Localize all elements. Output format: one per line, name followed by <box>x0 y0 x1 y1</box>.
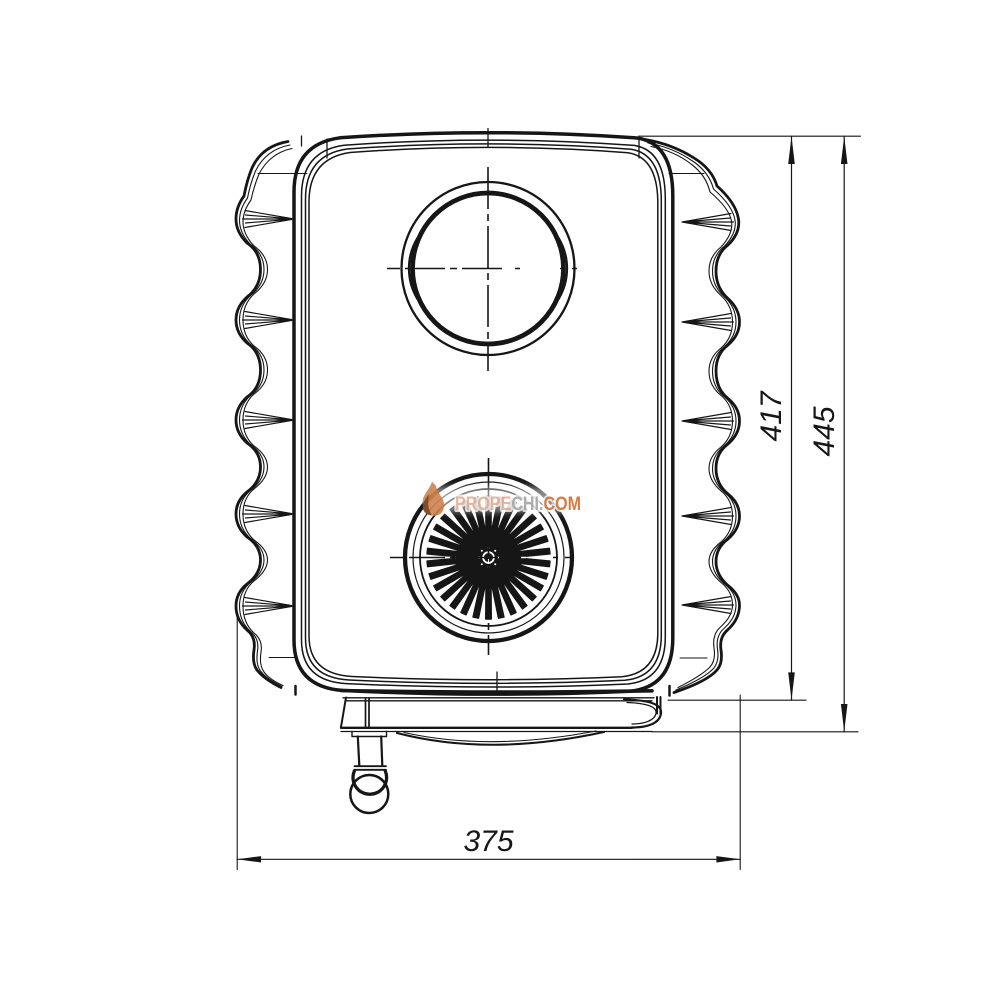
svg-text:PROPECHI.COM: PROPECHI.COM <box>455 494 581 515</box>
svg-text:417: 417 <box>755 390 788 441</box>
svg-text:445: 445 <box>808 406 841 456</box>
svg-text:375: 375 <box>463 825 513 858</box>
